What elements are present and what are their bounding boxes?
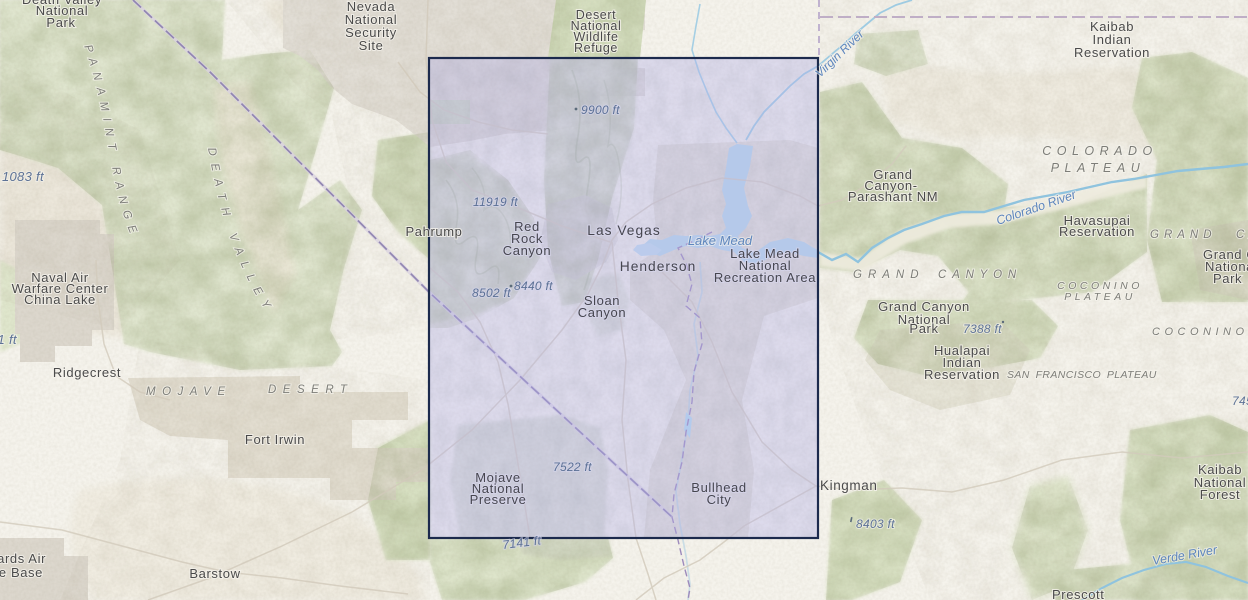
- svg-text:CANYON: CANYON: [938, 269, 1022, 281]
- svg-text:11919 ft: 11919 ft: [473, 195, 518, 209]
- svg-text:7388 ft: 7388 ft: [963, 322, 1002, 336]
- svg-text:Parashant NM: Parashant NM: [848, 189, 938, 204]
- svg-text:ce Base: ce Base: [0, 565, 43, 580]
- svg-text:Reservation: Reservation: [924, 367, 1000, 382]
- svg-text:SAN FRANCISCO PLATEAU: SAN FRANCISCO PLATEAU: [1007, 369, 1157, 381]
- svg-text:PLATEAU: PLATEAU: [1051, 161, 1146, 175]
- svg-text:Canyon: Canyon: [578, 305, 626, 320]
- svg-text:Reservation: Reservation: [1074, 45, 1150, 60]
- svg-text:PLATEAU: PLATEAU: [1064, 291, 1136, 303]
- svg-text:GRAND: GRAND: [1150, 229, 1217, 241]
- svg-text:Las Vegas: Las Vegas: [587, 223, 660, 238]
- svg-text:8502 ft: 8502 ft: [472, 286, 511, 300]
- svg-text:MOJAVE: MOJAVE: [146, 386, 232, 398]
- svg-text:Barstow: Barstow: [189, 566, 240, 581]
- svg-text:51 ft: 51 ft: [0, 332, 18, 347]
- svg-text:ards Air: ards Air: [0, 551, 46, 566]
- svg-text:Prescott: Prescott: [1052, 587, 1104, 600]
- svg-text:7456 ft: 7456 ft: [1232, 394, 1248, 408]
- svg-text:Reservation: Reservation: [1059, 224, 1135, 239]
- svg-text:DESERT: DESERT: [268, 384, 353, 396]
- svg-text:COLORADO: COLORADO: [1042, 144, 1158, 158]
- svg-text:Fort Irwin: Fort Irwin: [245, 432, 305, 447]
- svg-text:Ridgecrest: Ridgecrest: [53, 365, 121, 380]
- svg-text:7522 ft: 7522 ft: [553, 460, 592, 474]
- svg-text:Henderson: Henderson: [620, 259, 697, 274]
- svg-text:Pahrump: Pahrump: [406, 224, 463, 239]
- svg-text:Recreation Area: Recreation Area: [714, 270, 816, 285]
- svg-text:1083 ft: 1083 ft: [2, 169, 45, 184]
- svg-text:9900 ft: 9900 ft: [581, 103, 620, 117]
- svg-text:Park: Park: [909, 321, 938, 336]
- svg-text:Canyon: Canyon: [503, 243, 551, 258]
- svg-text:8440 ft: 8440 ft: [514, 279, 553, 293]
- svg-text:Preserve: Preserve: [470, 492, 527, 507]
- svg-text:Site: Site: [359, 38, 384, 53]
- svg-text:COCONINO: COCONINO: [1152, 326, 1248, 338]
- svg-text:Park: Park: [46, 15, 75, 30]
- svg-text:GRAND: GRAND: [853, 269, 925, 281]
- svg-text:Kingman: Kingman: [820, 478, 877, 493]
- svg-text:8403 ft: 8403 ft: [856, 517, 895, 531]
- svg-text:Refuge: Refuge: [574, 41, 618, 55]
- svg-text:China Lake: China Lake: [24, 292, 96, 307]
- svg-text:Park: Park: [1213, 271, 1242, 286]
- svg-text:CA: CA: [1236, 229, 1248, 241]
- svg-text:City: City: [707, 492, 732, 507]
- svg-text:Forest: Forest: [1200, 487, 1240, 502]
